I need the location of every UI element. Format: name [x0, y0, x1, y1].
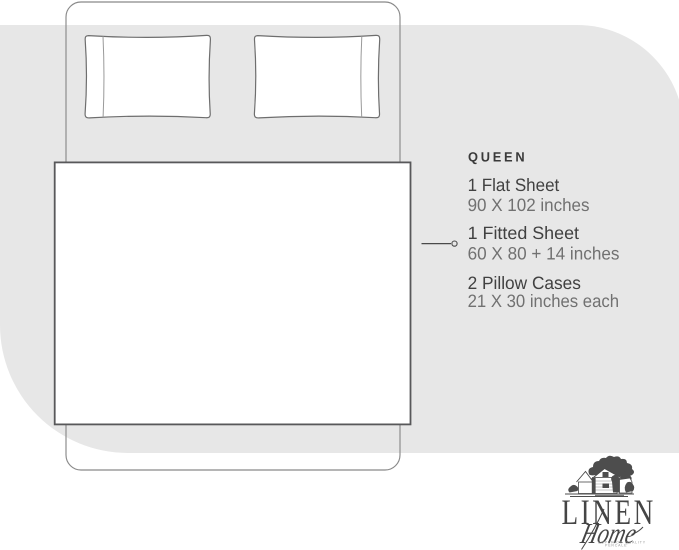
svg-text:60 X 80 + 14 inches: 60 X 80 + 14 inches — [468, 244, 620, 264]
svg-text:1 Fitted Sheet: 1 Fitted Sheet — [468, 223, 579, 243]
svg-text:PERCALE: PERCALE — [605, 544, 627, 548]
svg-text:21 X 30 inches each: 21 X 30 inches each — [468, 291, 619, 311]
svg-text:2 Pillow Cases: 2 Pillow Cases — [468, 273, 581, 293]
svg-text:90 X 102 inches: 90 X 102 inches — [468, 195, 590, 215]
svg-text:1 Flat Sheet: 1 Flat Sheet — [468, 175, 560, 195]
svg-text:QUEEN: QUEEN — [468, 149, 527, 164]
